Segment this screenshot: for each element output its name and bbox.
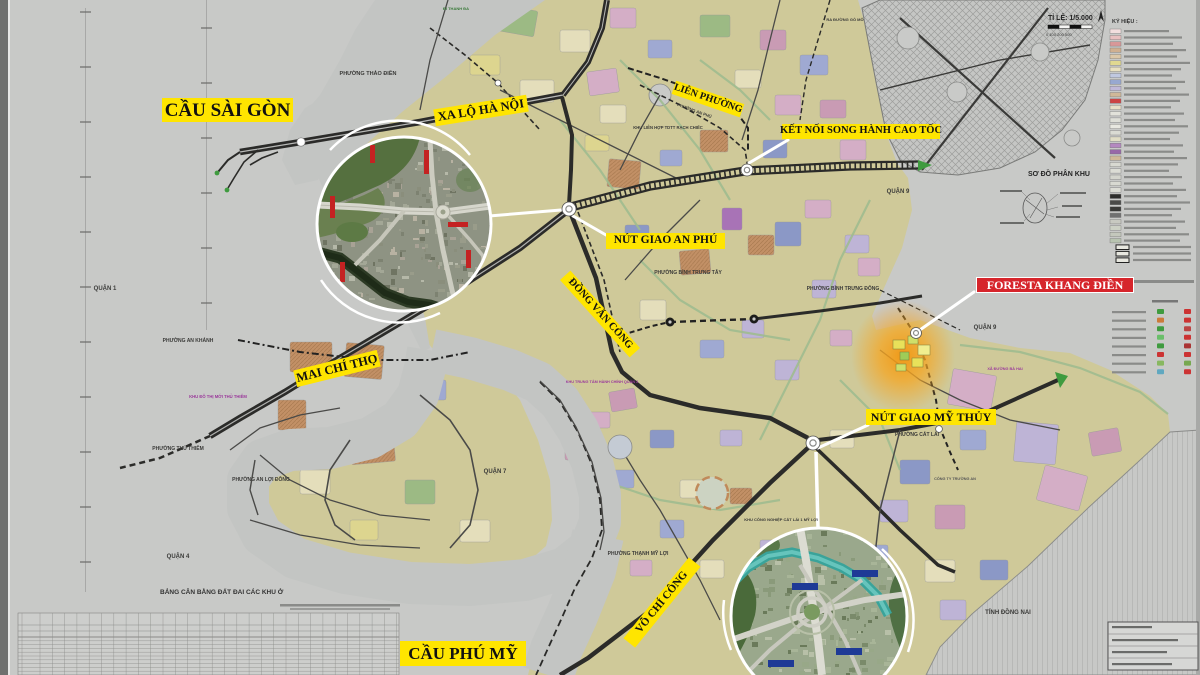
svg-text:0 100 200 500: 0 100 200 500 — [1046, 32, 1072, 37]
svg-text:KHU TRUNG TÂM HÀNH CHÍNH QUẬN: KHU TRUNG TÂM HÀNH CHÍNH QUẬN 2 — [566, 379, 639, 384]
svg-text:TỈNH ĐỒNG NAI: TỈNH ĐỒNG NAI — [985, 609, 1031, 616]
svg-text:RA ĐƯỜNG GÒ MÔ: RA ĐƯỜNG GÒ MÔ — [826, 17, 863, 22]
svg-text:PHƯỜNG THẢO ĐIỀN: PHƯỜNG THẢO ĐIỀN — [340, 69, 397, 77]
svg-text:PHƯỜNG CÁT LÁI: PHƯỜNG CÁT LÁI — [895, 430, 940, 438]
svg-text:QUẬN 4: QUẬN 4 — [167, 553, 190, 560]
svg-text:QUẬN 7: QUẬN 7 — [484, 468, 507, 475]
svg-text:PHƯỜNG THỦ THIÊM: PHƯỜNG THỦ THIÊM — [152, 444, 203, 452]
svg-text:PHƯỜNG BÌNH TRƯNG TÂY: PHƯỜNG BÌNH TRƯNG TÂY — [654, 268, 722, 276]
svg-text:TỈ LỆ: 1/5.000: TỈ LỆ: 1/5.000 — [1048, 13, 1093, 22]
svg-text:QUẬN 9: QUẬN 9 — [887, 188, 910, 195]
svg-text:PHƯỜNG BÌNH TRƯNG ĐÔNG: PHƯỜNG BÌNH TRƯNG ĐÔNG — [807, 284, 880, 292]
svg-text:KÝ HIỆU :: KÝ HIỆU : — [1112, 17, 1138, 25]
svg-text:PHƯỜNG THẠNH MỸ LỢI: PHƯỜNG THẠNH MỸ LỢI — [608, 549, 669, 557]
svg-text:PHƯỜNG AN KHÁNH: PHƯỜNG AN KHÁNH — [163, 336, 214, 344]
svg-text:QUẬN 9: QUẬN 9 — [974, 324, 997, 331]
svg-text:CÔNG TY TRƯỜNG AN: CÔNG TY TRƯỜNG AN — [934, 476, 976, 481]
svg-text:ĐI THANH ĐA: ĐI THANH ĐA — [443, 6, 469, 11]
svg-text:XÃ ĐƯỜNG BÀ HAI: XÃ ĐƯỜNG BÀ HAI — [987, 366, 1022, 371]
svg-text:KHU ĐÔ THỊ MỚI THỦ THIÊM: KHU ĐÔ THỊ MỚI THỦ THIÊM — [189, 394, 247, 399]
svg-text:PHƯỜNG AN LỢI ĐÔNG: PHƯỜNG AN LỢI ĐÔNG — [232, 475, 290, 483]
svg-text:KHU CÔNG NGHIỆP CẮT LÁI 1 MỸ L: KHU CÔNG NGHIỆP CẮT LÁI 1 MỸ LỢI — [744, 517, 818, 522]
svg-text:QUẬN 1: QUẬN 1 — [94, 285, 117, 292]
svg-text:KHU LIÊN HỢP TDTT RẠCH CHIẾC: KHU LIÊN HỢP TDTT RẠCH CHIẾC — [633, 125, 703, 130]
